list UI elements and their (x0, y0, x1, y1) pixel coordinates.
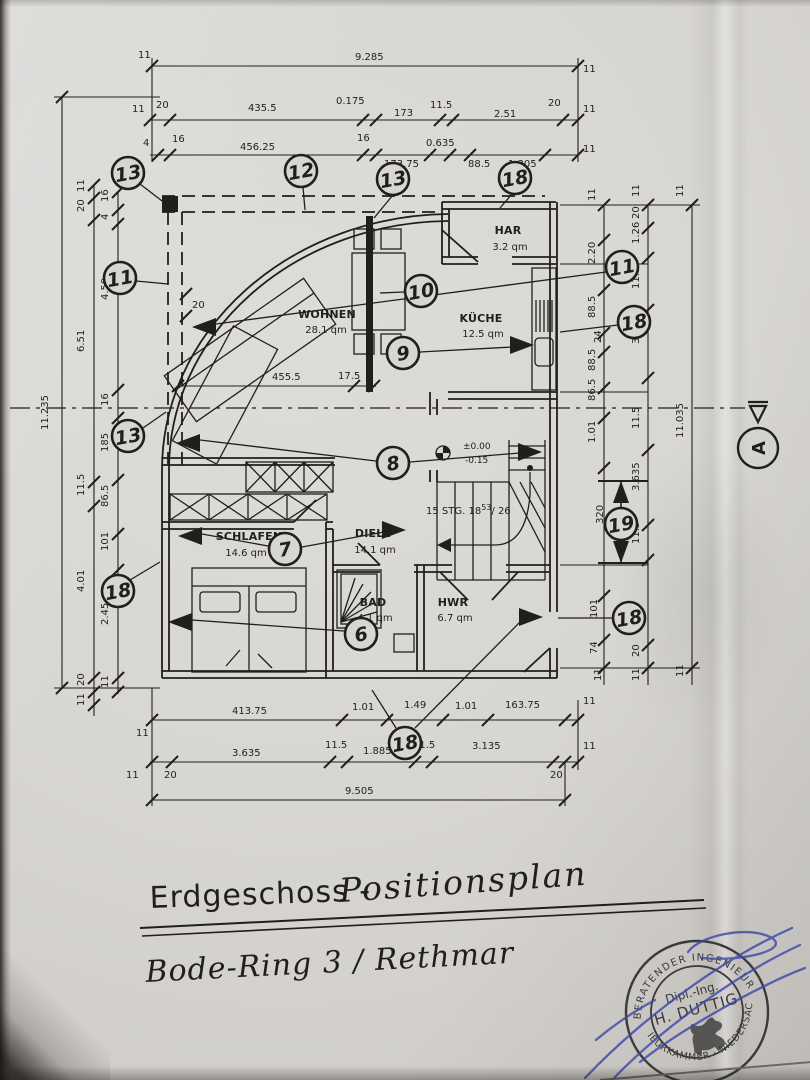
level-marker: ±0.00 -0.15 (436, 442, 491, 466)
dim-label: 11 (675, 184, 686, 197)
dim-label: 2.20 (587, 242, 598, 264)
room-label-wohnen: WOHNEN (298, 308, 356, 321)
dim-label: 435.5 (248, 103, 277, 114)
dim-label: 11.5 (76, 474, 87, 496)
dim-label: 16 (100, 189, 111, 202)
dim-label: 24 (593, 330, 604, 343)
room-area-har: 3.2 qm (492, 242, 527, 253)
dim-label: 11 (675, 664, 686, 677)
dim-chain-bottom: 11 413.75 1.01 1.49 1.01 163.75 11 11 20… (126, 688, 596, 806)
dining-table (352, 229, 405, 354)
dim-label: 16 (172, 134, 185, 145)
dim-label: 413.75 (232, 706, 267, 717)
room-area-schlafen: 14.6 qm (225, 548, 267, 559)
position-badge: 18 (613, 602, 645, 634)
room-area-diele: 14.1 qm (354, 545, 396, 556)
wc-fixture (394, 634, 414, 652)
room-label-kueche: KÜCHE (459, 311, 502, 325)
position-badge: 13 (377, 163, 409, 195)
dim-label: 4 (143, 138, 149, 149)
dim-label: 9.505 (345, 786, 374, 797)
arrow-icon (519, 608, 543, 626)
scanned-floor-plan-sheet: 15 STG. 1853/ 26 (0, 0, 810, 1080)
badge-number: 13 (113, 161, 143, 187)
dim-label: 455.5 (272, 372, 301, 383)
dim-label: 16 (100, 393, 111, 406)
dim-label: 3.135 (472, 741, 501, 752)
stairs-label: 15 STG. 1853/ 26 (426, 503, 511, 517)
dim-label: 16 (357, 133, 370, 144)
dim-label: 11 (631, 184, 642, 197)
dim-label: 6.51 (76, 330, 87, 352)
room-area-kueche: 12.5 qm (462, 329, 504, 340)
position-badge: 6 (345, 618, 377, 650)
dim-label: 86.5 (100, 485, 111, 507)
position-badge: 7 (269, 533, 301, 565)
dim-label: 11 (583, 741, 596, 752)
position-badge: 12 (285, 155, 317, 187)
dim-label: 74 (589, 641, 600, 654)
section-marker-a: A (738, 402, 778, 468)
photo-corner-shadow (0, 950, 110, 1080)
photo-edge-top (0, 0, 810, 7)
level-lower: -0.15 (465, 456, 488, 466)
dim-interior: 455.5 17.5 20 (172, 288, 380, 392)
dim-label: 20 (550, 770, 563, 781)
dim-label: 11 (583, 696, 596, 707)
dim-label: 2.45 (100, 603, 111, 625)
dim-label: 4.01 (76, 570, 87, 592)
dim-label: 11 (631, 668, 642, 681)
photo-edge-bottom (0, 1066, 810, 1080)
floor-plan-drawing: 15 STG. 1853/ 26 (0, 0, 810, 1080)
room-label-diele: DIELE (355, 527, 391, 540)
dim-label: 11 (126, 770, 139, 781)
room-label-bad: BAD (360, 596, 387, 609)
dim-label: 20 (156, 100, 169, 111)
closets (170, 462, 333, 520)
dim-label: 11 (587, 188, 598, 201)
dim-label: 20 (76, 199, 87, 212)
badge-number: 11 (607, 255, 637, 281)
room-label-hwr: HWR (438, 596, 469, 609)
dim-label: 11 (136, 728, 149, 739)
position-arrows (168, 318, 543, 631)
badge-number: 18 (619, 310, 649, 336)
dim-label: 11 (76, 179, 87, 192)
position-badge: 18 (499, 162, 531, 194)
badge-number: 10 (406, 279, 436, 305)
badge-number: 18 (390, 731, 420, 757)
badge-number: 18 (614, 606, 644, 632)
dim-label: 456.25 (240, 142, 275, 153)
dim-label: 11 (138, 50, 151, 61)
dim-label: 1.49 (404, 700, 426, 711)
dim-label: 1.01 (455, 701, 477, 712)
badge-number: 12 (286, 159, 316, 185)
position-badge: 18 (618, 306, 650, 338)
arrow-icon (510, 336, 534, 354)
badge-number: 18 (103, 579, 133, 605)
dim-label: 88.5 (468, 159, 490, 170)
dim-label: 1.01 (352, 702, 374, 713)
dim-label: 11.035 (675, 403, 686, 438)
dim-label: 163.75 (505, 700, 540, 711)
position-badge: 10 (405, 275, 437, 307)
dim-label: 3.635 (631, 462, 642, 491)
dim-label: 4 (100, 214, 111, 220)
arrow-icon (168, 613, 192, 631)
photo-edge-left (0, 0, 11, 1080)
arrow-icon (192, 318, 216, 336)
dim-label: 20 (164, 770, 177, 781)
badge-number: 13 (378, 167, 408, 193)
position-badge: 19 (605, 508, 637, 540)
title-block: Erdgeschoss - Positionsplan Bode-Ring 3 … (140, 854, 706, 990)
dim-label: 11.5 (325, 740, 347, 751)
dim-label: 86.5 (587, 379, 598, 401)
position-badge: 11 (606, 251, 638, 283)
dim-label: 0.175 (336, 96, 365, 107)
dim-chain-top: 11 9.285 11 11 20 435.5 0.175 173 11.5 2… (132, 50, 596, 170)
dim-label: 17.5 (338, 371, 360, 382)
dim-label: 11.5 (631, 407, 642, 429)
dim-label: 11.235 (40, 395, 51, 430)
room-label-har: HAR (495, 224, 522, 237)
bed (192, 568, 306, 672)
dim-label: 11 (100, 675, 111, 688)
room-area-hwr: 6.7 qm (437, 613, 472, 624)
dim-label: 185 (100, 433, 111, 452)
dim-label: 11.5 (430, 100, 452, 111)
position-badge: 11 (104, 262, 136, 294)
position-badge: 8 (377, 447, 409, 479)
room-area-wohnen: 28.1 qm (305, 325, 347, 336)
position-badge: 13 (112, 157, 144, 189)
dim-label: 20 (631, 206, 642, 219)
dim-label: 1.885 (363, 746, 392, 757)
dim-label: 20 (548, 98, 561, 109)
badge-number: 11 (105, 266, 135, 292)
dim-label: 2.51 (494, 109, 516, 120)
badge-number: 19 (606, 512, 636, 538)
dim-label: 88.5 (587, 349, 598, 371)
badge-number: 13 (113, 424, 143, 450)
dim-label: 3.635 (232, 748, 261, 759)
dim-label: 88.5 (587, 296, 598, 318)
badge-number: 18 (500, 166, 530, 192)
dim-label: 0.635 (426, 138, 455, 149)
kitchen-counter (532, 268, 556, 390)
dim-label: 173 (394, 108, 413, 119)
title-sub: Bode-Ring 3 / Rethmar (144, 936, 516, 990)
dim-label: 11 (583, 144, 596, 155)
position-badge: 9 (387, 337, 419, 369)
dim-label: 11 (583, 64, 596, 75)
position-badge: 18 (102, 575, 134, 607)
dim-label: 20 (76, 673, 87, 686)
section-letter: A (749, 441, 770, 455)
dim-label: 101 (100, 532, 111, 551)
dim-label: 9.285 (355, 52, 384, 63)
dim-label: 11 (76, 693, 87, 706)
dim-label: 20 (192, 300, 205, 311)
dim-label: 1.01 (587, 421, 598, 443)
dim-label: 1.26 (631, 222, 642, 244)
position-badge: 13 (112, 420, 144, 452)
position-badge: 18 (389, 727, 421, 759)
dim-label: 11 (583, 104, 596, 115)
title-main: Positionsplan (337, 854, 589, 910)
level-upper: ±0.00 (463, 442, 491, 452)
dim-label: 11 (593, 668, 604, 681)
dim-label: 101 (589, 599, 600, 618)
dim-label: 11 (132, 104, 145, 115)
dim-label: 20 (631, 644, 642, 657)
